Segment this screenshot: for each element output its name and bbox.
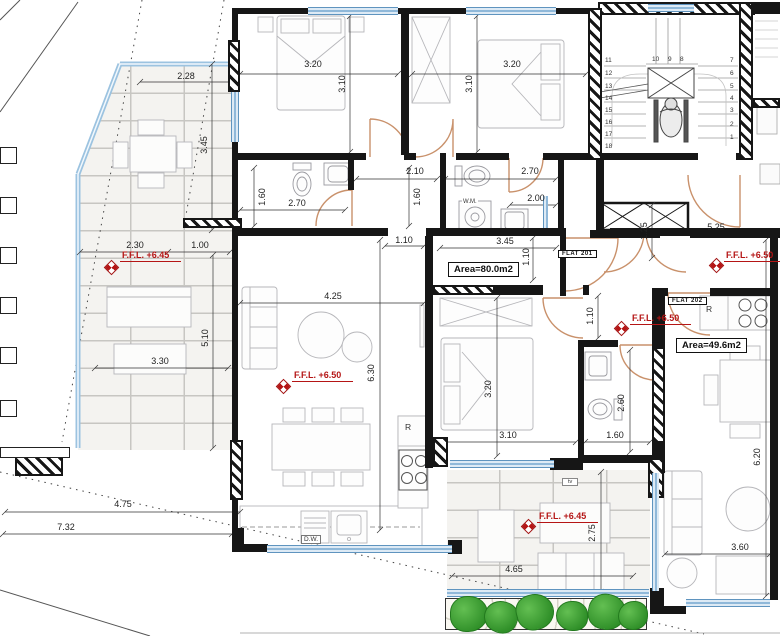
stair-lift [648, 68, 694, 142]
wall-hatched [228, 40, 240, 92]
dim-terrace3-h: 2.75 [587, 524, 597, 542]
wall-segment [456, 153, 509, 160]
wall-landing-bottom [590, 230, 660, 238]
wall-hatched-stair-right [739, 2, 753, 160]
stair-number: 13 [605, 83, 612, 90]
dim-bed3-h: 3.20 [483, 380, 493, 398]
washing-machine-label: W.M. [462, 199, 478, 205]
stair-number: 6 [730, 70, 734, 77]
wall-segment [590, 153, 698, 160]
stair-number: 9 [668, 56, 672, 63]
dim-landing-h: 1.25 [639, 222, 649, 240]
dim-bed2-h: 3.10 [464, 75, 474, 93]
stair-number: 4 [730, 95, 734, 102]
tv-label: tv [562, 478, 578, 486]
dim-corr202-h: 1.10 [585, 307, 595, 325]
dim-terrace2-w2: 1.00 [191, 240, 209, 250]
furniture-living-201 [240, 287, 428, 546]
wall-segment [232, 544, 268, 552]
wall-hatched-stair-left [588, 8, 602, 160]
site-step [0, 147, 17, 164]
dim-terrace2-h: 5.10 [200, 329, 210, 347]
dim-terrace2-w3: 3.30 [151, 356, 169, 366]
ffl-label-flat202: F.F.L. +6.50 [630, 313, 691, 323]
dim-bath3-h: 2.60 [616, 394, 626, 412]
site-step [0, 400, 17, 417]
dim-wc2-h: 2.00 [527, 193, 545, 203]
dim-living2-w: 3.60 [731, 542, 749, 552]
stair-number: 17 [605, 131, 612, 138]
area-label-flat201: Area=80.0m2 [448, 262, 519, 277]
stair-number: 11 [605, 57, 612, 64]
wall-exterior-right [770, 236, 778, 600]
window-living-201 [267, 545, 452, 553]
stair-number: 2 [730, 121, 734, 128]
wall-bed3-top [495, 285, 543, 295]
dim-site-w2: 7.32 [57, 522, 75, 532]
wall-segment [650, 606, 686, 614]
stair-number: 18 [605, 143, 612, 150]
stair-number: 10 [652, 56, 659, 63]
neighbor-fixtures [757, 106, 780, 184]
dim-bed3-w: 3.10 [499, 430, 517, 440]
wall-hatched-bath3 [652, 347, 665, 443]
area-label-flat202: Area=49.6m2 [676, 338, 747, 353]
window-living-202 [686, 599, 770, 607]
dim-site-w1: 4.75 [114, 499, 132, 509]
dim-hall-top-w: 2.10 [406, 166, 424, 176]
stair-number: 8 [680, 56, 684, 63]
site-step [0, 347, 17, 364]
ffl-label-terrace-left: F.F.L. +6.45 [120, 250, 181, 260]
wall-living-right [425, 236, 433, 468]
wall-hatched [230, 440, 243, 500]
stair-number: 12 [605, 70, 612, 77]
dim-bed1-w: 3.20 [304, 59, 322, 69]
plant [618, 601, 648, 630]
fridge-label-201: R [405, 422, 411, 432]
stair-number: 15 [605, 107, 612, 114]
wall-segment [558, 153, 564, 236]
wall-segment [690, 230, 780, 238]
wall-segment [596, 160, 604, 230]
window [308, 7, 398, 15]
floor-plan-canvas: 2.28 3.45 3.20 3.10 3.20 3.10 2.10 2.70 … [0, 0, 780, 636]
stair-number: 7 [730, 57, 734, 64]
dim-bath1-w: 2.70 [288, 198, 306, 208]
flat-label-201: FLAT 201 [558, 250, 597, 258]
wall-segment [583, 285, 589, 295]
dim-wc2-top-w: 2.70 [521, 166, 539, 176]
stair-number: 14 [605, 95, 612, 102]
window-bed3 [450, 460, 554, 468]
wall-segment [232, 153, 366, 160]
stove-201 [399, 450, 427, 490]
dishwasher-label: D.W. [301, 535, 321, 544]
dim-terrace1-w: 2.28 [177, 71, 195, 81]
wall-segment [232, 8, 308, 14]
window-terrace-side [652, 473, 659, 591]
wall-segment [348, 160, 354, 190]
wall-segment [560, 236, 566, 296]
wall-segment [404, 153, 416, 160]
ffl-label-landing: F.F.L. +6.50 [724, 250, 780, 260]
dim-living1-w: 4.25 [324, 291, 342, 301]
wall-segment [426, 228, 566, 236]
wall-hatched [753, 98, 780, 108]
window [231, 92, 239, 142]
wall-segment [652, 288, 668, 296]
dim-terrace3-w: 4.65 [505, 564, 523, 574]
dim-terrace2-w1: 2.30 [126, 240, 144, 250]
stair-number: 5 [730, 83, 734, 90]
plant [556, 601, 588, 631]
window [466, 7, 556, 15]
wall-hatched [433, 437, 448, 467]
wall-living-top [232, 228, 388, 236]
dim-living1-h: 6.30 [366, 364, 376, 382]
dim-living2-h: 6.20 [752, 448, 762, 466]
dim-entry201-h: 1.10 [521, 248, 531, 266]
flat-label-202: FLAT 202 [668, 297, 707, 305]
wall-bath3-top [583, 340, 618, 347]
site-step [0, 197, 17, 214]
window-terrace-front [447, 589, 649, 597]
wall-segment [710, 288, 778, 296]
site-wall-bar [0, 447, 70, 458]
ffl-label-terrace-bottom: F.F.L. +6.45 [537, 511, 598, 521]
wall-hatched [433, 285, 495, 295]
wall-hatched [183, 218, 242, 228]
stair-number: 3 [730, 107, 734, 114]
dim-landing-w: 5.25 [707, 222, 725, 232]
stair-number: 1 [730, 134, 734, 141]
wall-segment [232, 8, 238, 42]
stair-number: 16 [605, 119, 612, 126]
window-stair [648, 4, 694, 12]
site-step [0, 247, 17, 264]
dim-bath3-w: 1.60 [606, 430, 624, 440]
dim-bed1-h: 3.10 [337, 75, 347, 93]
dim-terrace1-h: 3.45 [199, 136, 209, 154]
ffl-label-living-201: F.F.L. +6.50 [292, 370, 353, 380]
dim-bed2-w: 3.20 [503, 59, 521, 69]
fridge-label-202: R [706, 304, 712, 314]
wall-segment [578, 340, 584, 460]
wall-partition-bedrooms [401, 14, 409, 155]
site-step [0, 297, 17, 314]
dim-wc2-w: 3.45 [496, 236, 514, 246]
dim-hall-opening: 1.10 [395, 235, 413, 245]
wall-segment [440, 153, 446, 236]
wall-segment [550, 458, 583, 470]
dim-bath1-h: 1.60 [257, 188, 267, 206]
dim-hall-h: 1.60 [412, 188, 422, 206]
